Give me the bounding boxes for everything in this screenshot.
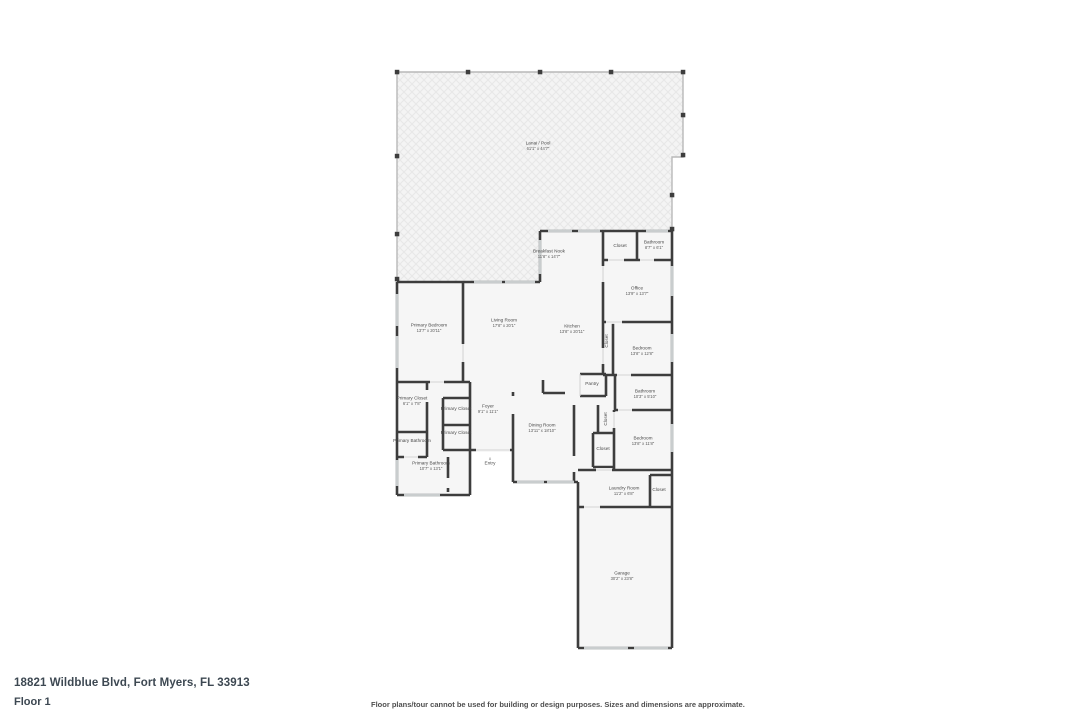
floor-plan-page: Lanai / Pool61'1" x 44'7"Breakfast Nook1… — [0, 0, 1080, 720]
floor-label: Floor 1 — [14, 696, 51, 708]
property-address: 18821 Wildblue Blvd, Fort Myers, FL 3391… — [14, 677, 250, 689]
floor-plan-drawing — [0, 0, 1080, 720]
disclaimer-text: Floor plans/tour cannot be used for buil… — [371, 700, 745, 709]
house-floor — [397, 231, 672, 648]
